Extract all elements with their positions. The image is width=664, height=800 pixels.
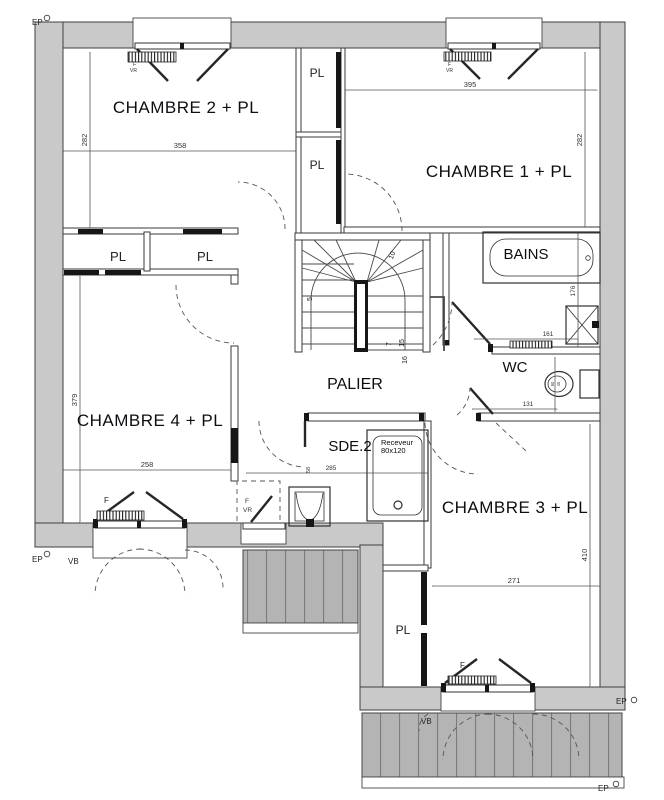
dim-sde2-width: 285 — [326, 465, 337, 472]
room-label-sde2: SDE.2 — [328, 438, 371, 455]
ep-marker-right: EP — [616, 697, 627, 706]
dim-sde2-small: 58 — [306, 467, 312, 473]
toilet-dim-90: 90 — [550, 381, 555, 386]
radiator-chambre1 — [444, 52, 491, 61]
vb-marker-left: VB — [68, 557, 79, 566]
shower-tray-label2: 80x120 — [381, 446, 406, 455]
washbasin-tap — [306, 519, 314, 527]
window-label-f: F — [104, 496, 109, 505]
stair-spine-core — [357, 284, 365, 348]
closet-label-pl1: PL — [310, 66, 325, 80]
dim-chambre4-height: 379 — [70, 394, 79, 407]
dim-chambre3-height: 410 — [580, 549, 589, 562]
closet-label-pl4: PL — [197, 249, 213, 264]
shower-drain — [394, 501, 402, 509]
wall-right — [600, 22, 625, 710]
wall-protrusion-left — [360, 545, 383, 690]
interior-walls — [63, 48, 600, 571]
room-label-bains: BAINS — [503, 246, 548, 263]
window-label-vr: VR — [243, 507, 252, 514]
toilet-dim-45: 45 — [556, 381, 561, 386]
radiator-chambre3 — [448, 676, 496, 684]
roof-hatch-left — [243, 550, 358, 623]
shower-tray: Receveur 80x120 — [367, 430, 428, 521]
wall-left — [35, 22, 63, 547]
door-arc-sde2 — [259, 421, 305, 467]
stair-spur-wall — [430, 297, 444, 351]
washbasin-bains — [566, 306, 599, 344]
window-label-f: F — [245, 498, 249, 505]
ep-marker-bottom-right: EP — [598, 784, 609, 793]
roof-hatch-bottom — [362, 713, 622, 777]
door-leaf-bains — [452, 302, 490, 344]
stair-step-5: 5 — [307, 297, 314, 301]
door-arc-chambre4 — [176, 285, 234, 343]
door-arc-chambre2 — [238, 182, 285, 229]
door-arc-chambre1 — [345, 174, 402, 231]
door-leaf-wc — [470, 388, 493, 414]
dim-bains-width: 161 — [543, 331, 554, 338]
floor-plan-page: 5 10 7 15 16 F VR F VR — [0, 0, 664, 800]
doors — [176, 174, 526, 474]
roof-fascia-bottom — [362, 777, 624, 788]
dim-chambre2-height: 282 — [80, 134, 89, 147]
room-label-chambre3: CHAMBRE 3 + PL — [442, 498, 588, 517]
vb-marker-right: VB — [421, 717, 432, 726]
door-arc-wc — [457, 388, 470, 415]
door-leaf-dash-chambre3 — [496, 423, 526, 451]
window-label-vr: VR — [446, 68, 453, 74]
wall-bottom-left — [35, 523, 383, 547]
sloped-ceiling-zone — [237, 481, 280, 521]
ep-marker-bottom-left: EP — [32, 555, 43, 564]
dim-chambre1-width: 395 — [464, 80, 477, 89]
ep-marker-top-left: EP — [32, 18, 43, 27]
stair-step-10: 10 — [388, 251, 397, 261]
room-label-palier: PALIER — [327, 376, 383, 393]
room-label-wc: WC — [503, 359, 528, 376]
dim-chambre1-height: 282 — [575, 134, 584, 147]
floor-plan-drawing: 5 10 7 15 16 F VR F VR — [0, 0, 664, 800]
window-label-vr: VR — [130, 68, 137, 74]
room-label-chambre1: CHAMBRE 1 + PL — [426, 162, 572, 181]
radiator-bains — [510, 341, 552, 348]
window-top-right: F VR — [444, 43, 540, 79]
door-arc-chambre3 — [425, 423, 478, 474]
radiator-chambre4 — [97, 511, 144, 520]
stair-step-16: 16 — [402, 356, 409, 364]
dim-chambre4-width: 258 — [141, 460, 154, 469]
washbasin-tap — [592, 321, 599, 328]
dim-wc-width: 131 — [523, 401, 534, 408]
bathtub-drain — [586, 256, 591, 261]
window-label-f: F — [460, 661, 465, 670]
closet-label-pl2: PL — [310, 158, 325, 172]
washbasin-sde2 — [289, 487, 330, 527]
dim-bains-height: 176 — [570, 285, 577, 296]
stair-step-7: 7 — [386, 342, 393, 346]
window-top-left: F VR — [128, 43, 230, 81]
room-label-chambre4: CHAMBRE 4 + PL — [77, 411, 223, 430]
dim-chambre2-width: 358 — [174, 141, 187, 150]
room-label-chambre2: CHAMBRE 2 + PL — [113, 98, 259, 117]
stair-step-15: 15 — [399, 339, 406, 347]
closet-label-pl5: PL — [396, 623, 411, 637]
window-small-palier: F VR — [237, 481, 285, 529]
dim-chambre3-width: 271 — [508, 576, 521, 585]
radiator-chambre2 — [128, 52, 176, 62]
closet-label-pl3: PL — [110, 249, 126, 264]
toilet: 90 45 — [545, 370, 599, 398]
roof-fascia-left — [243, 623, 358, 633]
